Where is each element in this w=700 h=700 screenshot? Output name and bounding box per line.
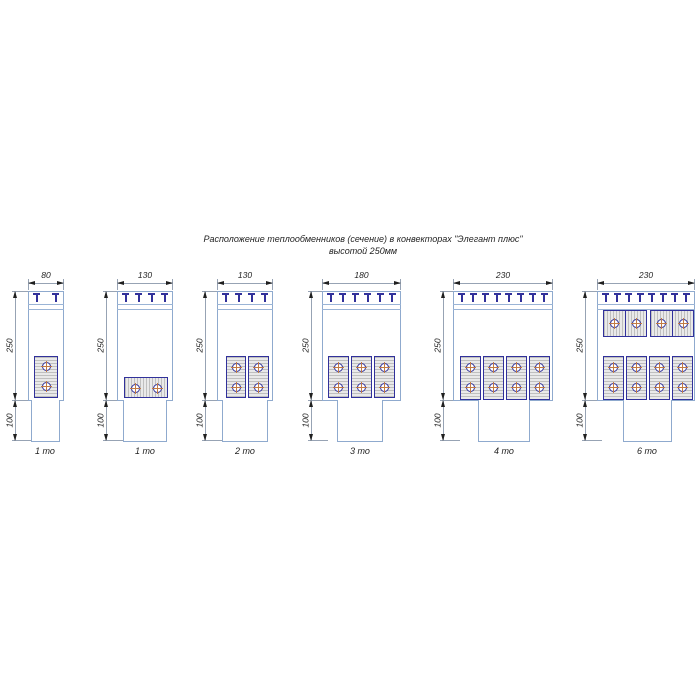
dim-arrow-down-icon: [583, 393, 587, 400]
diagram-area: 802501001 то1302501001 то1302501002 то18…: [0, 0, 700, 700]
grille-tooth-icon: [222, 293, 229, 303]
width-dim-line: [597, 283, 695, 284]
width-dim-line: [117, 283, 173, 284]
grille-band-line: [453, 304, 553, 305]
tube-circle-icon: [535, 383, 544, 392]
grille-tooth-icon: [148, 293, 155, 303]
tube-circle-icon: [466, 363, 475, 372]
tube-circle-icon: [678, 363, 687, 372]
body-height-value: 250: [575, 326, 586, 366]
grille-tooth-icon: [614, 293, 621, 303]
dim-arrow-left-icon: [217, 281, 224, 285]
dim-arrow-up-icon: [309, 291, 313, 298]
dim-arrow-right-icon: [266, 281, 273, 285]
tube-circle-icon: [254, 383, 263, 392]
grille-tooth-icon: [494, 293, 501, 303]
dim-arrow-up-icon: [104, 291, 108, 298]
dim-arrow-up-icon: [441, 291, 445, 298]
dim-arrow-right-icon: [166, 281, 173, 285]
grille-teeth-row: [33, 293, 59, 303]
grille-band-line: [28, 304, 64, 305]
grille-band-line: [117, 309, 173, 310]
dim-arrow-right-icon: [57, 281, 64, 285]
convector-label: 3 то: [332, 446, 388, 456]
tube-circle-icon: [512, 363, 521, 372]
grille-teeth-row: [222, 293, 268, 303]
grille-tooth-icon: [637, 293, 644, 303]
tube-circle-icon: [42, 362, 51, 371]
tube-circle-icon: [232, 383, 241, 392]
body-height-value: 250: [301, 326, 312, 366]
width-dim-value: 130: [105, 270, 185, 280]
duct-height-value: 100: [96, 401, 107, 441]
duct-height-value: 100: [5, 401, 16, 441]
convector-duct: [123, 400, 167, 442]
grille-tooth-icon: [377, 293, 384, 303]
tube-circle-icon: [609, 363, 618, 372]
grille-tooth-icon: [33, 293, 40, 303]
tube-circle-icon: [380, 383, 389, 392]
convector-label: 4 то: [476, 446, 532, 456]
dim-arrow-down-icon: [13, 393, 17, 400]
tube-circle-icon: [655, 363, 664, 372]
grille-tooth-icon: [683, 293, 690, 303]
grille-teeth-row: [327, 293, 396, 303]
grille-tooth-icon: [339, 293, 346, 303]
grille-tooth-icon: [261, 293, 268, 303]
tube-circle-icon: [357, 383, 366, 392]
convector-label: 1 то: [117, 446, 173, 456]
tube-circle-icon: [42, 382, 51, 391]
block-divider: [672, 311, 673, 336]
convector-label: 6 то: [619, 446, 675, 456]
tube-circle-icon: [466, 383, 475, 392]
dim-arrow-up-icon: [13, 291, 17, 298]
grille-tooth-icon: [671, 293, 678, 303]
dim-arrow-down-icon: [104, 393, 108, 400]
tube-circle-icon: [655, 383, 664, 392]
dim-arrow-left-icon: [322, 281, 329, 285]
dim-arrow-down-icon: [441, 393, 445, 400]
tube-circle-icon: [153, 384, 162, 393]
dim-arrow-up-icon: [203, 291, 207, 298]
body-height-value: 250: [5, 326, 16, 366]
tube-circle-icon: [131, 384, 140, 393]
convector-duct: [31, 400, 60, 442]
tube-circle-icon: [632, 363, 641, 372]
dim-arrow-left-icon: [453, 281, 460, 285]
convector-duct: [337, 400, 383, 442]
grille-teeth-row: [602, 293, 690, 303]
tube-circle-icon: [535, 363, 544, 372]
grille-tooth-icon: [648, 293, 655, 303]
grille-tooth-icon: [482, 293, 489, 303]
grille-tooth-icon: [52, 293, 59, 303]
tube-circle-icon: [512, 383, 521, 392]
dim-arrow-left-icon: [117, 281, 124, 285]
grille-band-line: [597, 304, 695, 305]
width-dim-value: 230: [441, 270, 565, 280]
grille-tooth-icon: [458, 293, 465, 303]
duct-height-value: 100: [195, 401, 206, 441]
grille-tooth-icon: [364, 293, 371, 303]
dim-arrow-down-icon: [309, 393, 313, 400]
duct-height-value: 100: [433, 401, 444, 441]
drawing-canvas: Расположение теплообменников (сечение) в…: [0, 0, 700, 700]
grille-tooth-icon: [517, 293, 524, 303]
tube-circle-icon: [334, 363, 343, 372]
grille-tooth-icon: [352, 293, 359, 303]
tube-circle-icon: [380, 363, 389, 372]
grille-tooth-icon: [529, 293, 536, 303]
width-dim-value: 180: [310, 270, 413, 280]
tube-circle-icon: [679, 319, 688, 328]
block-divider: [625, 311, 626, 336]
dim-arrow-up-icon: [583, 291, 587, 298]
tube-circle-icon: [489, 363, 498, 372]
convector-label: 2 то: [217, 446, 273, 456]
grille-tooth-icon: [122, 293, 129, 303]
grille-tooth-icon: [235, 293, 242, 303]
grille-band-line: [28, 309, 64, 310]
width-dim-value: 80: [16, 270, 76, 280]
dim-arrow-right-icon: [688, 281, 695, 285]
dim-arrow-right-icon: [546, 281, 553, 285]
width-dim-line: [453, 283, 553, 284]
dim-arrow-down-icon: [203, 393, 207, 400]
tube-circle-icon: [254, 363, 263, 372]
grille-tooth-icon: [389, 293, 396, 303]
duct-height-value: 100: [575, 401, 586, 441]
duct-height-value: 100: [301, 401, 312, 441]
grille-band-line: [217, 309, 273, 310]
grille-tooth-icon: [161, 293, 168, 303]
grille-band-line: [322, 309, 401, 310]
convector-duct: [478, 400, 530, 442]
width-dim-value: 230: [585, 270, 700, 280]
tube-circle-icon: [657, 319, 666, 328]
tube-circle-icon: [489, 383, 498, 392]
grille-tooth-icon: [327, 293, 334, 303]
tube-circle-icon: [632, 319, 641, 328]
tube-circle-icon: [609, 383, 618, 392]
body-height-value: 250: [96, 326, 107, 366]
body-height-value: 250: [195, 326, 206, 366]
tube-circle-icon: [678, 383, 687, 392]
convector-label: 1 то: [17, 446, 73, 456]
grille-tooth-icon: [602, 293, 609, 303]
grille-tooth-icon: [135, 293, 142, 303]
width-dim-line: [217, 283, 273, 284]
grille-band-line: [322, 304, 401, 305]
convector-duct: [222, 400, 268, 442]
tube-circle-icon: [334, 383, 343, 392]
tube-circle-icon: [232, 363, 241, 372]
grille-tooth-icon: [625, 293, 632, 303]
grille-teeth-row: [122, 293, 168, 303]
width-dim-line: [322, 283, 401, 284]
grille-band-line: [117, 304, 173, 305]
grille-tooth-icon: [660, 293, 667, 303]
tube-circle-icon: [632, 383, 641, 392]
dim-arrow-left-icon: [28, 281, 35, 285]
body-height-value: 250: [433, 326, 444, 366]
tube-circle-icon: [357, 363, 366, 372]
dim-arrow-right-icon: [394, 281, 401, 285]
grille-tooth-icon: [505, 293, 512, 303]
tube-circle-icon: [610, 319, 619, 328]
grille-tooth-icon: [541, 293, 548, 303]
grille-tooth-icon: [248, 293, 255, 303]
dim-arrow-left-icon: [597, 281, 604, 285]
grille-tooth-icon: [470, 293, 477, 303]
width-dim-value: 130: [205, 270, 285, 280]
convector-duct: [623, 400, 672, 442]
grille-band-line: [217, 304, 273, 305]
grille-teeth-row: [458, 293, 548, 303]
grille-band-line: [453, 309, 553, 310]
